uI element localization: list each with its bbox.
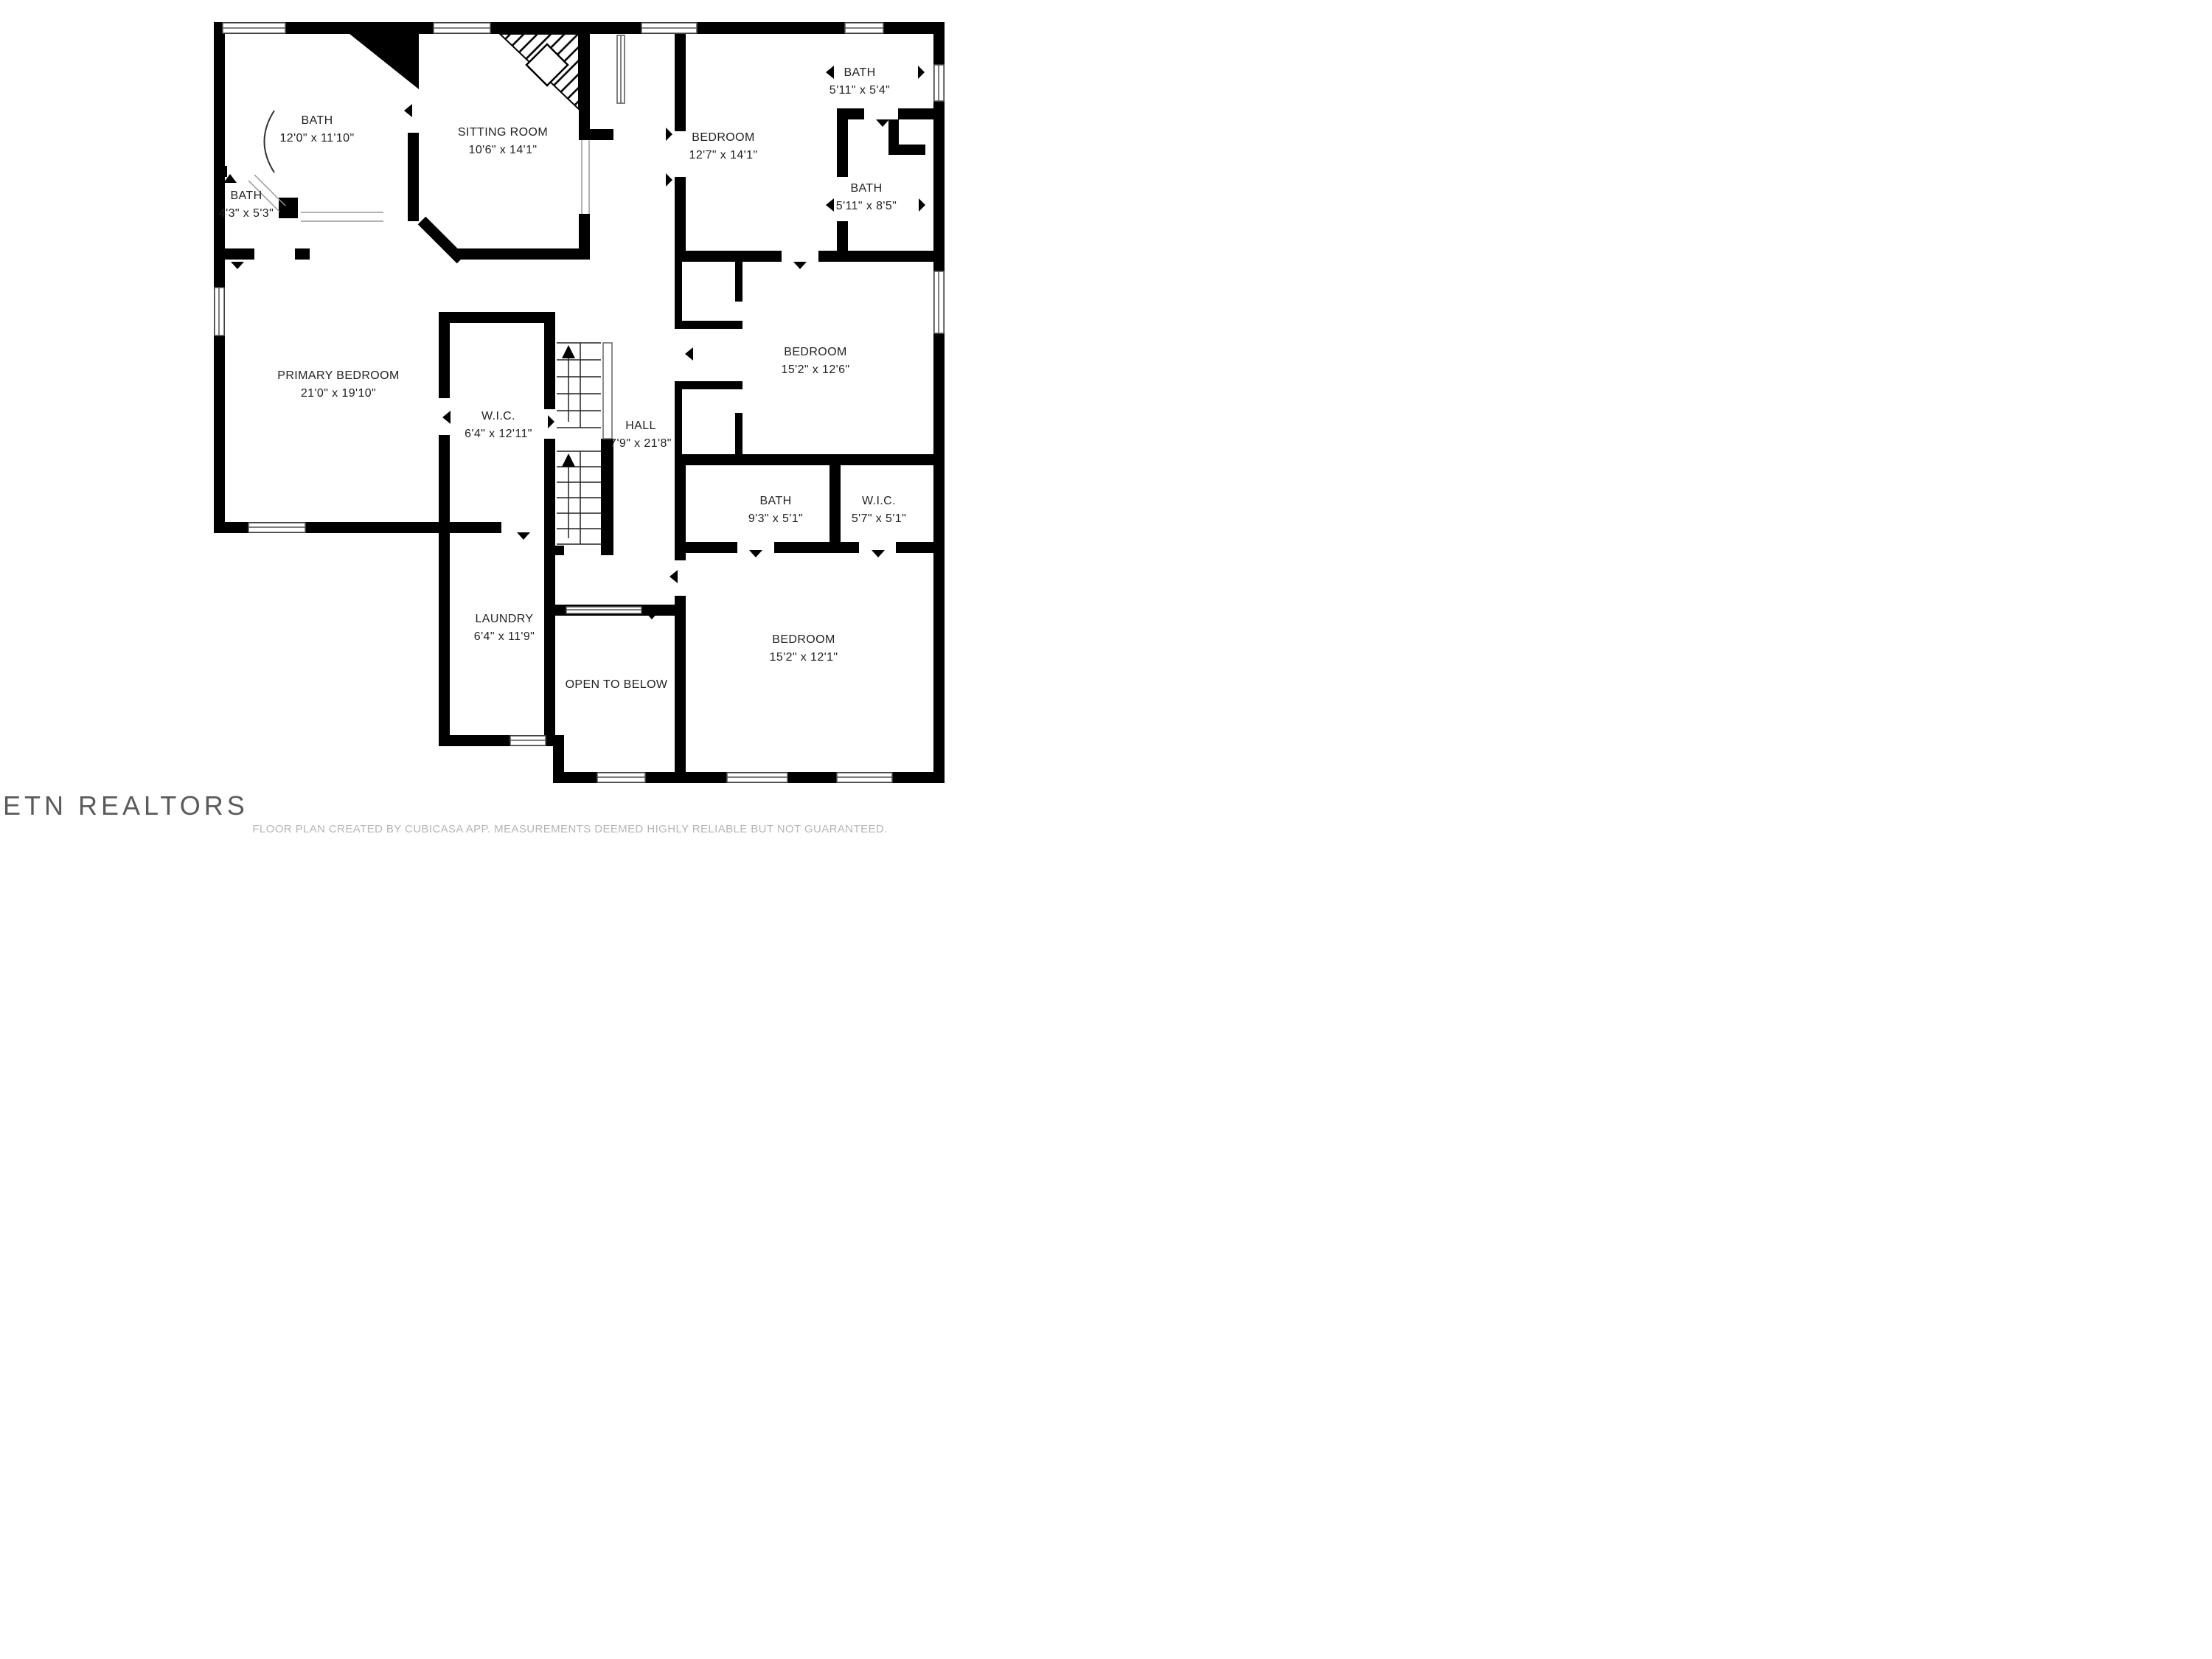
- room-label-hall: HALL 7'9" x 21'8": [610, 417, 672, 453]
- room-label-bedroom-mid: BEDROOM 15'2" x 12'6": [782, 344, 850, 379]
- room-name: LAUNDRY: [476, 613, 534, 625]
- room-name: PRIMARY BEDROOM: [277, 369, 399, 382]
- room-name: BEDROOM: [772, 633, 835, 646]
- room-label-primary: PRIMARY BEDROOM 21'0" x 19'10": [277, 367, 399, 403]
- room-dims: 12'7" x 14'1": [689, 147, 758, 164]
- room-label-bath-topright: BATH 5'11" x 5'4": [829, 64, 890, 100]
- room-name: BATH: [230, 189, 262, 202]
- room-label-wic-small: W.I.C. 5'7" x 5'1": [852, 493, 906, 528]
- hatched-ceiling-triangle: [500, 34, 579, 109]
- room-name: W.I.C.: [862, 495, 896, 507]
- room-dims: 10'6" x 14'1": [458, 142, 548, 159]
- room-name: OPEN TO BELOW: [566, 678, 668, 691]
- room-label-bath-right: BATH 5'11" x 8'5": [836, 180, 897, 215]
- room-label-sitting: SITTING ROOM 10'6" x 14'1": [458, 124, 548, 159]
- room-label-bedroom-top: BEDROOM 12'7" x 14'1": [689, 129, 758, 164]
- room-dims: 7'9" x 21'8": [610, 435, 672, 453]
- room-name: BATH: [759, 495, 791, 507]
- room-name: W.I.C.: [481, 410, 515, 422]
- room-label-laundry: LAUNDRY 6'4" x 11'9": [474, 611, 535, 646]
- room-dims: 21'0" x 19'10": [277, 385, 399, 403]
- room-label-wic-large: W.I.C. 6'4" x 12'11": [465, 408, 532, 443]
- floor-plan: BATH 12'0" x 11'10" BATH 4'3" x 5'3" SIT…: [0, 0, 1140, 855]
- room-dims: 6'4" x 12'11": [465, 425, 532, 443]
- solid-corner-triangle: [349, 34, 419, 89]
- room-name: BATH: [850, 182, 882, 195]
- room-dims: 4'3" x 5'3": [219, 205, 274, 223]
- room-dims: 12'0" x 11'10": [279, 130, 354, 147]
- shower-curve: [265, 111, 275, 173]
- room-dims: 9'3" x 5'1": [748, 510, 803, 528]
- room-name: BATH: [844, 66, 875, 79]
- footer-disclaimer: FLOOR PLAN CREATED BY CUBICASA APP. MEAS…: [0, 823, 1140, 835]
- room-dims: 5'7" x 5'1": [852, 510, 906, 528]
- room-dims: 15'2" x 12'1": [770, 649, 838, 667]
- room-name: SITTING ROOM: [458, 126, 548, 139]
- room-name: BEDROOM: [692, 131, 754, 144]
- room-name: BEDROOM: [784, 346, 846, 358]
- floor-plan-drawing: [0, 0, 1140, 855]
- room-name: HALL: [625, 420, 656, 432]
- angled-wall: [422, 220, 461, 260]
- room-dims: 6'4" x 11'9": [474, 628, 535, 646]
- room-label-open-below: OPEN TO BELOW: [566, 676, 668, 694]
- room-label-bath-main: BATH 12'0" x 11'10": [279, 112, 354, 147]
- room-dims: 5'11" x 8'5": [836, 198, 897, 215]
- room-dims: 15'2" x 12'6": [782, 361, 850, 379]
- watermark-logo: ETN REALTORS: [3, 790, 248, 821]
- room-label-bedroom-bottom: BEDROOM 15'2" x 12'1": [770, 631, 838, 667]
- room-label-bath-93: BATH 9'3" x 5'1": [748, 493, 803, 528]
- room-name: BATH: [301, 114, 333, 127]
- room-dims: 5'11" x 5'4": [829, 82, 890, 100]
- room-label-bath-small: BATH 4'3" x 5'3": [219, 187, 274, 223]
